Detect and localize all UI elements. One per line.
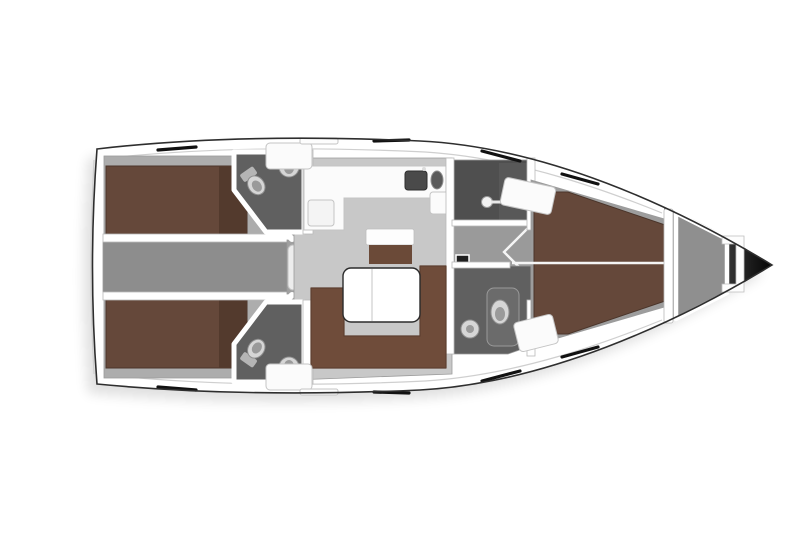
- corridor-aft-floor: [103, 242, 290, 292]
- faucet: [422, 167, 426, 171]
- forward-bulkhead: [664, 209, 673, 323]
- yacht-floorplan: [0, 0, 800, 533]
- corridor-aft: [103, 234, 290, 300]
- washbasin-forward-bowl: [466, 325, 474, 333]
- corridor-wall-bottom: [103, 292, 290, 300]
- sink-basin: [405, 171, 427, 190]
- round-sink: [431, 171, 443, 189]
- salon-table: [343, 268, 420, 322]
- wall-passage-head: [452, 262, 510, 268]
- wall-wet-passage: [452, 220, 531, 226]
- locker-stern-starboard: [266, 364, 312, 390]
- corridor-wall-top: [103, 234, 290, 242]
- shower-head: [482, 197, 493, 208]
- locker-stern-port: [266, 143, 312, 169]
- toilet-forward-seat: [495, 307, 505, 321]
- bow: [664, 207, 771, 323]
- anchor-locker: [676, 213, 727, 319]
- chart-table-top: [366, 229, 414, 245]
- bulkhead-salon-forward: [446, 158, 454, 354]
- stove: [308, 200, 334, 226]
- chart-table: [369, 245, 412, 264]
- floorplan-canvas: [0, 0, 800, 533]
